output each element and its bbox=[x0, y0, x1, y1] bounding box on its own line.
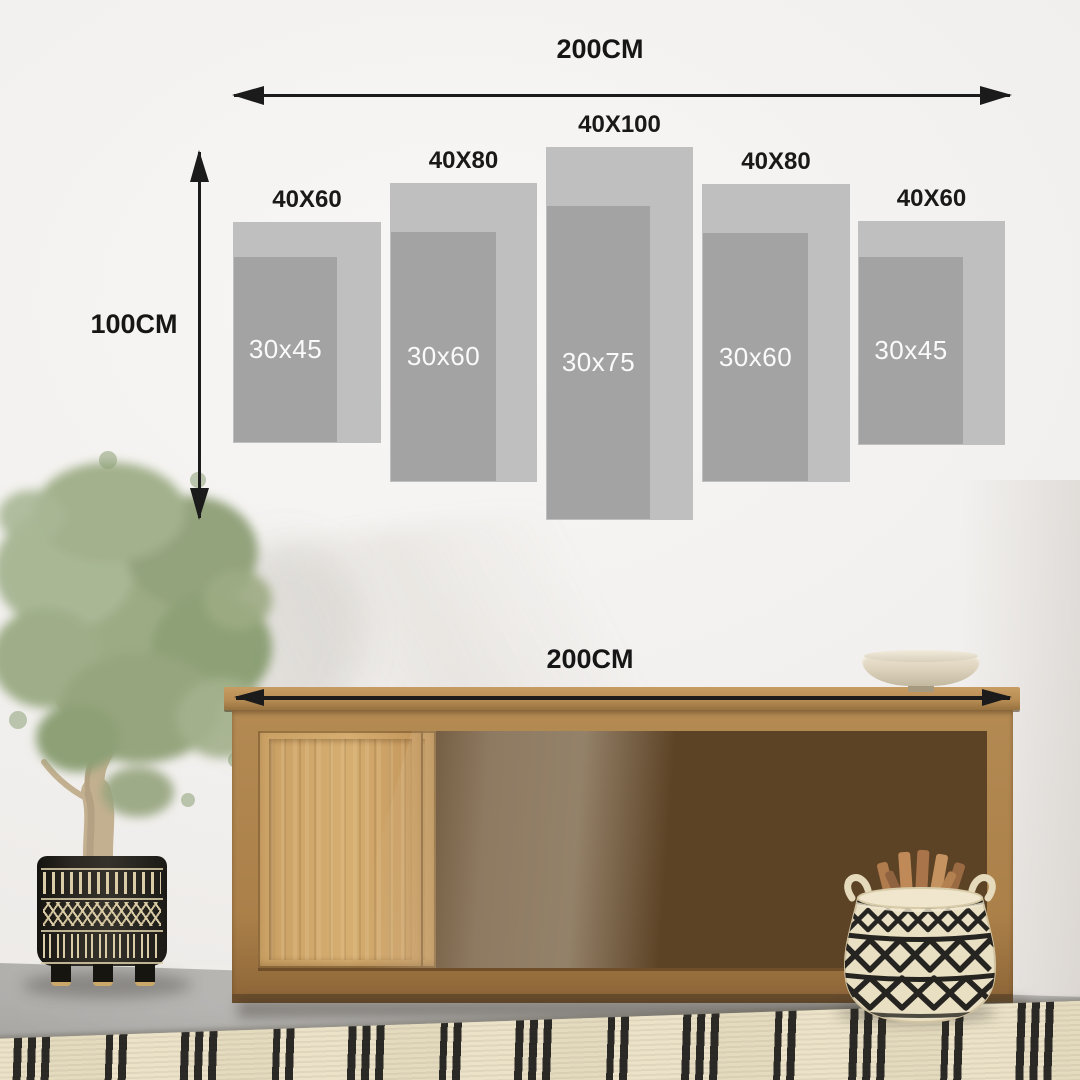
size-panel-5: 30x45 bbox=[858, 221, 1005, 445]
pot-foot bbox=[135, 964, 155, 986]
size-panel-4-print: 30x60 bbox=[703, 233, 808, 481]
wall-width-label: 200CM bbox=[500, 34, 700, 65]
panel-2-print-label: 30x60 bbox=[407, 341, 480, 372]
panel-4-print-label: 30x60 bbox=[719, 342, 792, 373]
size-panel-3: 30x75 bbox=[546, 147, 693, 520]
size-panel-4: 30x60 bbox=[702, 184, 850, 482]
pot-pattern-band-chevron bbox=[43, 902, 161, 926]
panel-5-size-label: 40X60 bbox=[858, 185, 1005, 213]
sideboard-door-4 bbox=[258, 731, 423, 968]
size-panel-1: 30x45 bbox=[233, 222, 381, 443]
pot-foot bbox=[51, 964, 71, 986]
size-panel-2-print: 30x60 bbox=[391, 232, 496, 481]
panel-3-size-label: 40X100 bbox=[546, 111, 693, 139]
pot-trim-line bbox=[41, 868, 163, 870]
pot-trim-line bbox=[41, 930, 163, 932]
pot-foot bbox=[93, 964, 113, 986]
size-panel-1-print: 30x45 bbox=[234, 257, 337, 442]
planter-pot bbox=[37, 856, 167, 966]
pot-trim-line bbox=[41, 898, 163, 900]
woven-basket bbox=[820, 840, 1020, 1030]
wall-height-label: 100CM bbox=[59, 309, 209, 340]
bowl-foot bbox=[908, 685, 934, 692]
bowl-rim bbox=[864, 650, 978, 662]
stone-bowl bbox=[862, 648, 980, 692]
size-panel-2: 30x60 bbox=[390, 183, 537, 482]
panel-4-size-label: 40X80 bbox=[702, 148, 850, 176]
size-panel-3-print: 30x75 bbox=[547, 206, 650, 519]
panel-2-size-label: 40X80 bbox=[390, 147, 537, 175]
pot-pattern-band-triangles bbox=[43, 934, 161, 958]
pot-pattern-band-ticks bbox=[43, 872, 161, 894]
panel-1-size-label: 40X60 bbox=[233, 186, 381, 214]
sideboard-width-label: 200CM bbox=[490, 644, 690, 675]
sideboard-width-arrow bbox=[236, 696, 1010, 700]
wall-width-arrow bbox=[234, 94, 1010, 97]
panel-5-print-label: 30x45 bbox=[874, 335, 947, 366]
panel-1-print-label: 30x45 bbox=[249, 334, 322, 365]
size-panel-5-print: 30x45 bbox=[859, 257, 963, 444]
panel-3-print-label: 30x75 bbox=[562, 347, 635, 378]
size-guide-mockup: 200CM 100CM 40X60 30x45 40X80 30x60 40X1… bbox=[0, 0, 1080, 1080]
